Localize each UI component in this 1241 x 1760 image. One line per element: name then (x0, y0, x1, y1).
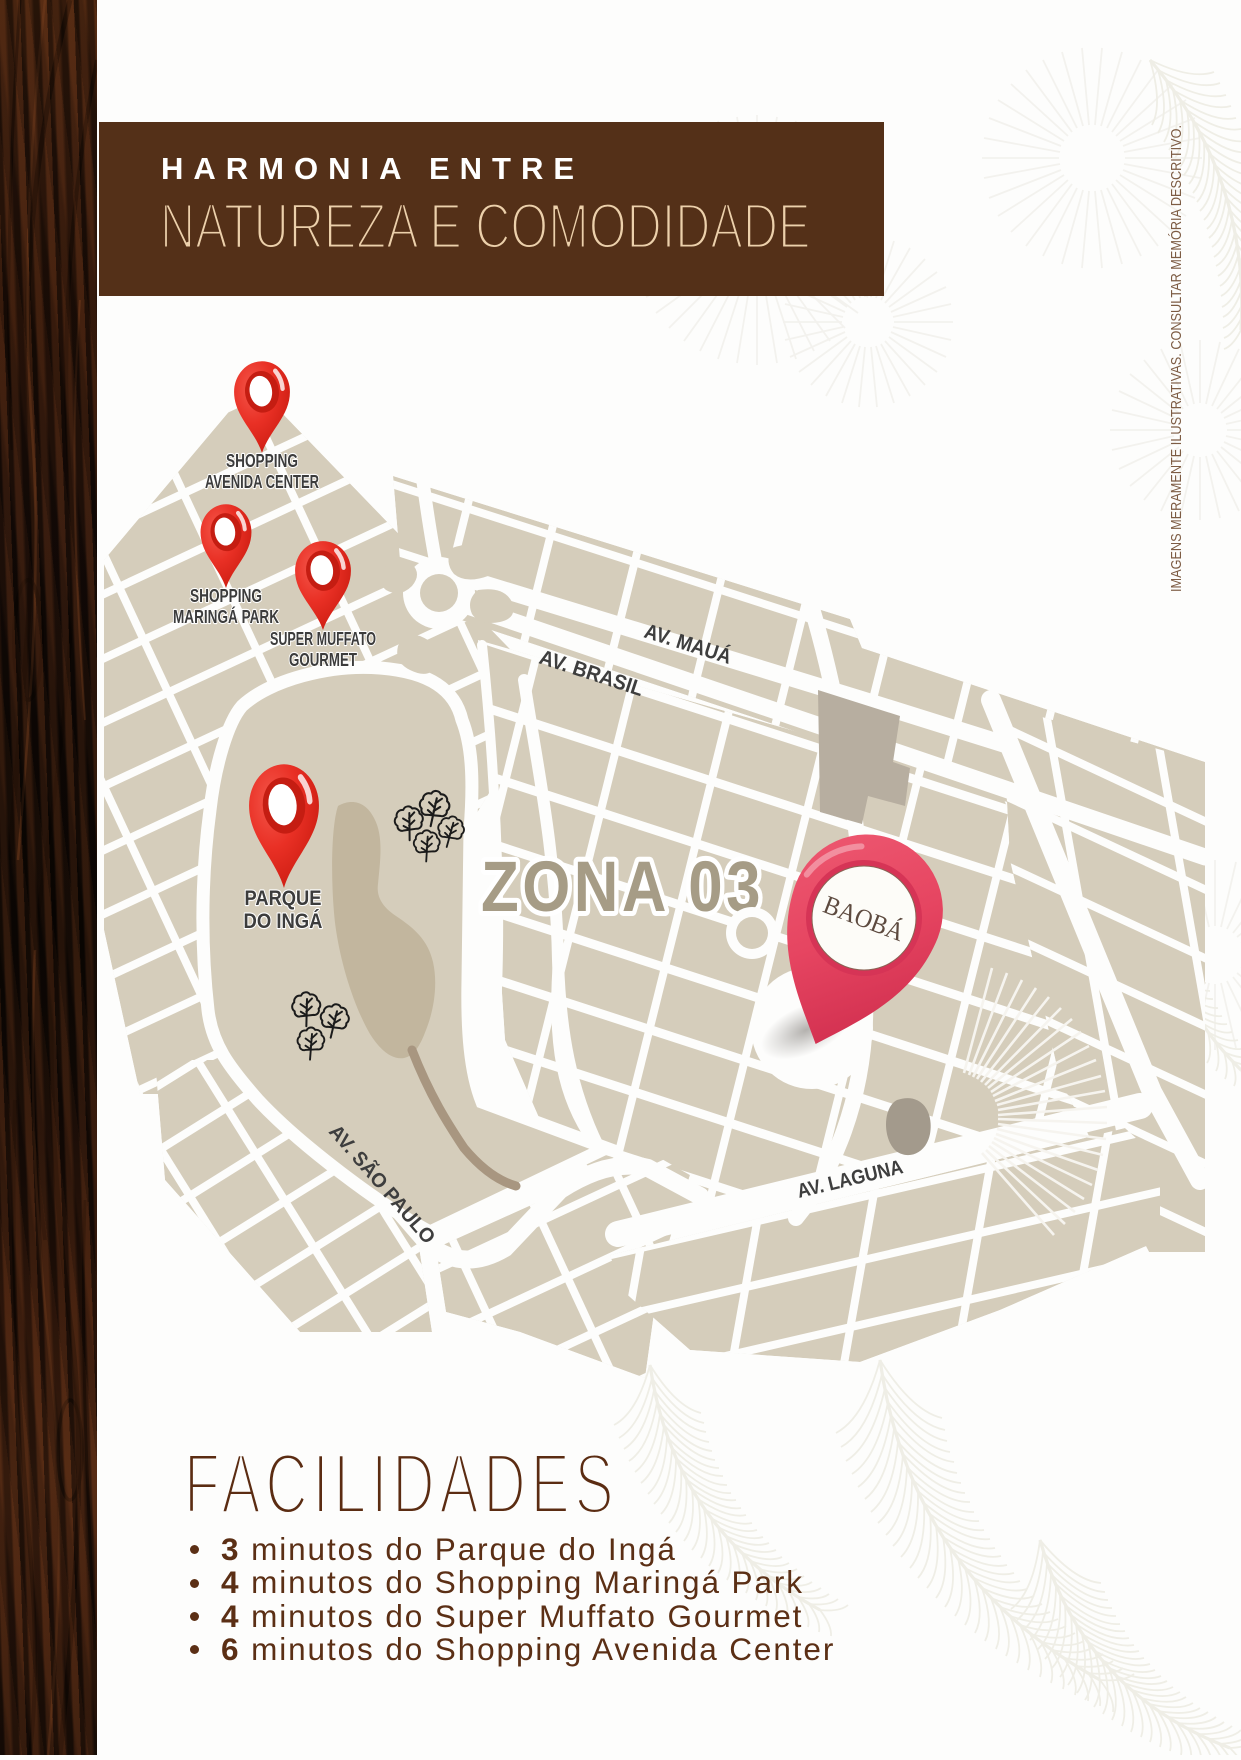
svg-text:DO INGÁ: DO INGÁ (244, 910, 323, 933)
svg-text:AVENIDA CENTER: AVENIDA CENTER (205, 472, 319, 492)
svg-text:IMAGENS MERAMENTE ILUSTRATIVAS: IMAGENS MERAMENTE ILUSTRATIVAS. CONSULTA… (1168, 125, 1185, 592)
svg-text:SHOPPING: SHOPPING (190, 586, 262, 606)
svg-text:ZONA 03: ZONA 03 (481, 848, 764, 927)
svg-text:GOURMET: GOURMET (289, 650, 357, 670)
svg-text:PARQUE: PARQUE (245, 887, 322, 910)
svg-text:SUPER MUFFATO: SUPER MUFFATO (270, 629, 376, 649)
svg-text:MARINGÁ PARK: MARINGÁ PARK (173, 606, 279, 627)
svg-text:SHOPPING: SHOPPING (226, 451, 298, 471)
